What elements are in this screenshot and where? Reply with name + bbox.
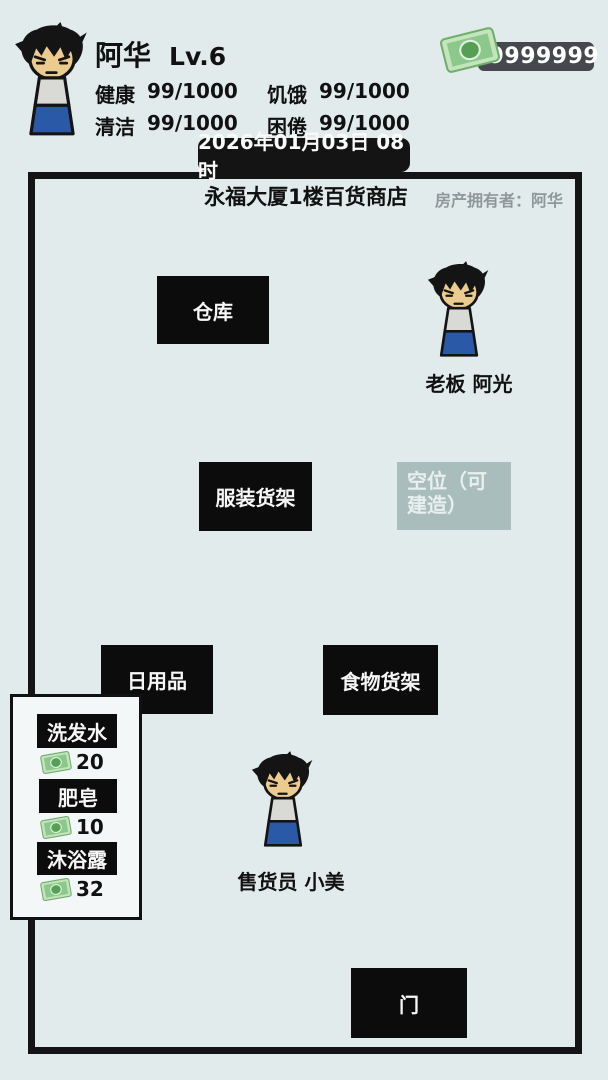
food-shelf-button[interactable]: 食物货架	[323, 645, 438, 715]
player-level: Lv.6	[169, 42, 226, 71]
money-icon	[39, 749, 72, 775]
item-bodywash-button[interactable]: 沐浴露	[37, 842, 117, 875]
shop-room	[28, 172, 582, 1054]
stat-health: 健康 99/1000	[95, 79, 238, 108]
shop-owner-label: 房产拥有者：阿华	[435, 187, 563, 211]
player-avatar[interactable]	[14, 22, 90, 138]
npc-clerk-label: 售货员 小美	[234, 866, 348, 895]
warehouse-button[interactable]: 仓库	[157, 276, 269, 344]
item-soap-price-row: 10	[41, 815, 104, 839]
door-button[interactable]: 门	[351, 968, 467, 1038]
stat-health-label: 健康	[95, 79, 135, 108]
stat-hunger-value: 99/1000	[319, 79, 410, 108]
clothing-shelf-button[interactable]: 服装货架	[199, 462, 312, 531]
stat-health-value: 99/1000	[147, 79, 238, 108]
price-list-panel: 洗发水 20 肥皂 10 沐浴露 32	[10, 694, 142, 920]
item-soap-button[interactable]: 肥皂	[39, 779, 117, 813]
stat-hunger-label: 饥饿	[267, 79, 307, 108]
npc-clerk-sprite[interactable]	[251, 747, 315, 853]
npc-boss-sprite[interactable]	[427, 257, 491, 363]
item-bodywash-price-row: 32	[41, 877, 104, 901]
shop-title: 永福大厦1楼百货商店	[200, 181, 412, 211]
item-shampoo-button[interactable]: 洗发水	[37, 714, 117, 748]
player-name-row: 阿华 Lv.6	[95, 34, 226, 74]
datetime-text: 2026年01月03日 08时	[198, 126, 410, 184]
stat-clean-label: 清洁	[95, 111, 135, 140]
money-icon	[39, 814, 72, 840]
stat-hunger: 饥饿 99/1000	[267, 79, 410, 108]
item-shampoo-price-row: 20	[41, 750, 104, 774]
npc-boss-label: 老板 阿光	[419, 368, 519, 397]
item-shampoo-price: 20	[76, 750, 104, 774]
item-bodywash-price: 32	[76, 877, 104, 901]
datetime-badge: 2026年01月03日 08时	[198, 138, 410, 172]
player-name: 阿华	[95, 34, 151, 74]
item-soap-price: 10	[76, 815, 104, 839]
game-screen: 阿华 Lv.6 健康 99/1000 饥饿 99/1000 清洁 99/1000…	[0, 0, 608, 1080]
empty-buildable-slot[interactable]: 空位（可建造）	[397, 462, 511, 530]
money-icon	[39, 876, 72, 902]
